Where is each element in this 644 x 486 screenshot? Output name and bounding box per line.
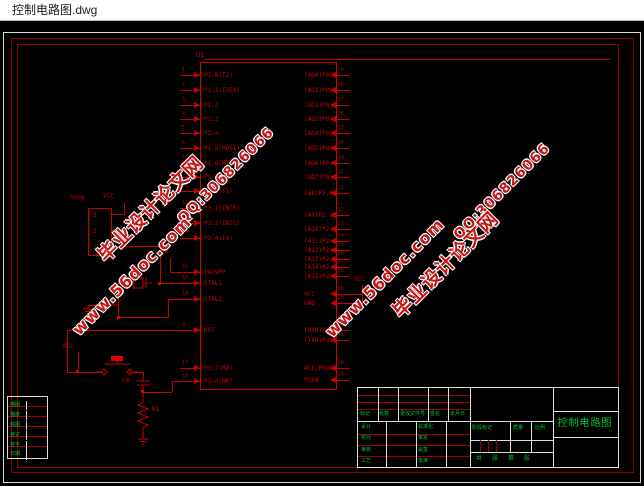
- pin-arrow-icon: [194, 102, 200, 108]
- pin-arrow-icon: [194, 378, 200, 384]
- title-block-line: [386, 421, 387, 467]
- title-block-line: [358, 421, 470, 422]
- title-block-line: [553, 437, 618, 438]
- margin-block-row: 签字: [8, 437, 47, 447]
- revision-header: 年月日: [450, 411, 465, 417]
- title-block-line: [531, 421, 532, 452]
- wire: [110, 214, 124, 215]
- vcc-label: VCC: [103, 194, 114, 200]
- vcc-label: VCC: [62, 344, 73, 350]
- pin-label: ALE/PROG: [304, 365, 333, 372]
- margin-block-row: 描校: [8, 407, 47, 417]
- title-block-line: [488, 440, 489, 452]
- stage-header: 阶段标记: [472, 425, 492, 431]
- title-block-line: [470, 452, 553, 453]
- wire: [78, 352, 79, 372]
- margin-block-label: 日期: [8, 450, 27, 460]
- pin-label: GND: [304, 300, 315, 307]
- pin-stub: [335, 276, 350, 277]
- sign-row-label: 会签: [418, 447, 428, 453]
- pin-number: 25: [338, 243, 344, 248]
- ground-icon: [137, 436, 149, 445]
- pin-arrow-icon: [194, 116, 200, 122]
- pin-label: XTAL1: [204, 280, 222, 287]
- sign-row-label: 设计: [361, 424, 371, 430]
- pin-number: 2: [182, 83, 185, 88]
- pin-label: P3.7(RD): [204, 365, 233, 372]
- pin-stub: [335, 133, 350, 134]
- sign-row-label: 审核: [361, 447, 371, 453]
- title-block-line: [496, 440, 497, 452]
- revision-header: 处数: [379, 411, 389, 417]
- sheet-count: 共 张 第 张: [476, 456, 534, 462]
- pin-arrow-icon: [194, 327, 200, 333]
- chip-ref-label: U1: [196, 52, 204, 58]
- pin-label: P1.5(MOSI): [204, 145, 240, 152]
- pin-number: 3: [182, 98, 185, 103]
- margin-block-row: 日期: [8, 447, 47, 457]
- pin-stub: [335, 177, 350, 178]
- sign-row-label: 标准化: [418, 424, 433, 430]
- pin-label: RST: [204, 327, 215, 334]
- pin-number: 34: [338, 141, 344, 146]
- pin-number: 39: [338, 68, 344, 73]
- pin-arrow-icon: [194, 130, 200, 136]
- junction-dot: [141, 390, 144, 393]
- title-block-line: [428, 388, 429, 421]
- pin-stub: [335, 148, 350, 149]
- stage-header: 比例: [535, 425, 545, 431]
- wire: [118, 317, 169, 318]
- pin-label: P1.0(T2): [204, 72, 233, 79]
- pin-number: 37: [338, 98, 344, 103]
- cad-canvas[interactable]: U1 1 P1.0(T2) 2 P1.1(T2EX) 3 P1.2 4: [0, 0, 644, 486]
- pin-label: P3.4(T0): [204, 235, 233, 242]
- drawing-title: 控制电路图: [554, 415, 616, 433]
- pin-arrow-icon: [194, 365, 200, 371]
- title-block-line: [470, 421, 553, 422]
- pin-stub: [335, 380, 350, 381]
- pin-arrow-icon: [194, 145, 200, 151]
- pin-stub: [335, 340, 350, 341]
- title-block-line: [416, 421, 417, 467]
- title-block-line: [470, 388, 471, 467]
- pin-arrow-icon: [194, 87, 200, 93]
- pin-number: 17: [182, 361, 188, 366]
- pin-label: (A8)P2.0: [304, 190, 333, 197]
- resistor-icon: [136, 395, 150, 436]
- pin-number: 26: [338, 252, 344, 257]
- pin-number: 9: [182, 323, 185, 328]
- pin-label: XTAL2: [204, 296, 222, 303]
- revision-header: 标记: [360, 411, 370, 417]
- capacitor-icon: [136, 377, 151, 389]
- pin-stub: [335, 105, 350, 106]
- margin-block-row: 装订: [8, 427, 47, 437]
- title-block: 标记 处数 更改文件号 签名 年月日 设计 校对 审核 工艺 标准化 审定 会签…: [357, 387, 619, 468]
- pin-number: 35: [338, 126, 344, 131]
- margin-block-row: 描图: [8, 397, 47, 407]
- title-block-line: [358, 456, 470, 457]
- wire: [205, 59, 610, 60]
- pin-arrow-icon: [194, 280, 200, 286]
- wire: [160, 283, 181, 284]
- title-block-line: [358, 434, 470, 435]
- pin-number: 23: [338, 222, 344, 227]
- pin-label: P3.2(INT0): [204, 205, 240, 212]
- wire: [172, 381, 181, 382]
- pin-number: 16: [182, 374, 188, 379]
- pin-number: 33: [338, 156, 344, 161]
- push-button-icon: [96, 354, 138, 374]
- margin-block-row: 底图: [8, 417, 47, 427]
- vcc-label: VCC: [354, 277, 365, 283]
- pin-number: 18: [182, 292, 188, 297]
- capacitor-label: C4: [122, 378, 129, 384]
- wire: [67, 330, 68, 373]
- pin-number: 6: [182, 141, 185, 146]
- title-block-line: [553, 411, 618, 412]
- title-block-line: [398, 388, 399, 421]
- pin-stub: [335, 215, 350, 216]
- pin-number: 32: [338, 170, 344, 175]
- title-block-line: [358, 445, 470, 446]
- pin-number: 40: [338, 287, 344, 292]
- pin-stub: [335, 368, 350, 369]
- pin-label: P1.1(T2EX): [204, 87, 240, 94]
- pin-label: PSEN: [304, 377, 318, 384]
- pin-number: 19: [182, 276, 188, 281]
- pin-label: P3.6(WR): [204, 378, 233, 385]
- revision-header: 更改文件号: [400, 411, 425, 417]
- pin-number: 36: [338, 112, 344, 117]
- title-block-line: [358, 409, 470, 410]
- sign-row-label: 批准: [418, 458, 428, 464]
- pin-number: 22: [338, 208, 344, 213]
- junction-dot: [76, 370, 79, 373]
- pin-number: 4: [182, 112, 185, 117]
- pin-arrow-icon: [194, 235, 200, 241]
- title-block-line: [358, 402, 470, 403]
- sign-row-label: 校对: [361, 435, 371, 441]
- pin-number: 30: [338, 361, 344, 366]
- sign-row-label: 工艺: [361, 458, 371, 464]
- pin-label: EA/VPP: [204, 269, 226, 276]
- title-block-line: [470, 440, 553, 441]
- pin-label: P1.2: [204, 102, 218, 109]
- pin-number: 21: [338, 186, 344, 191]
- pin-label: (A9)P2.1: [304, 212, 333, 219]
- revision-header: 签名: [430, 411, 440, 417]
- pin-arrow-icon: [194, 72, 200, 78]
- pin-number: 28: [338, 269, 344, 274]
- wire: [143, 392, 172, 393]
- wire: [170, 258, 171, 272]
- pin-label: P1.3: [204, 116, 218, 123]
- pin-label: VCC: [304, 291, 315, 298]
- pin-number: 24: [338, 234, 344, 239]
- sign-row-label: 审定: [418, 435, 428, 441]
- pin-label: P1.4: [204, 130, 218, 137]
- pin-arrow-icon: [194, 269, 200, 275]
- pin-number: 5: [182, 126, 185, 131]
- title-block-line: [510, 421, 511, 452]
- pin-number: 38: [338, 83, 344, 88]
- title-block-line: [448, 388, 449, 421]
- pin-stub: [335, 163, 350, 164]
- connector-label: hong: [70, 195, 84, 201]
- pin-number: 29: [338, 373, 344, 378]
- wire: [168, 299, 181, 300]
- junction-dot: [117, 316, 120, 319]
- wire: [172, 381, 173, 392]
- pin-number: 27: [338, 260, 344, 265]
- junction-dot: [158, 282, 161, 285]
- margin-block-table: 描图 描校 底图 装订 签字 日期: [7, 396, 48, 459]
- pin-stub: [335, 119, 350, 120]
- pin-number: 31: [182, 265, 188, 270]
- pin-number: 1: [182, 68, 185, 73]
- title-block-line: [358, 395, 470, 396]
- title-block-line: [446, 421, 447, 467]
- pin-stub: [335, 75, 350, 76]
- pin-label: P3.3(INT1): [204, 220, 240, 227]
- pin-stub: [335, 90, 350, 91]
- wire: [168, 299, 169, 318]
- connector-pin-number: 2: [93, 228, 97, 235]
- stage-header: 质量: [513, 425, 523, 431]
- title-block-line: [480, 440, 481, 452]
- pin-stub: [335, 193, 350, 194]
- resistor-label: R1: [152, 407, 159, 413]
- pin-arrow-icon: [194, 296, 200, 302]
- wire: [170, 272, 181, 273]
- pin-stub: [335, 229, 350, 230]
- pin-number: 20: [338, 296, 344, 301]
- connector-pin-number: 3: [93, 212, 97, 219]
